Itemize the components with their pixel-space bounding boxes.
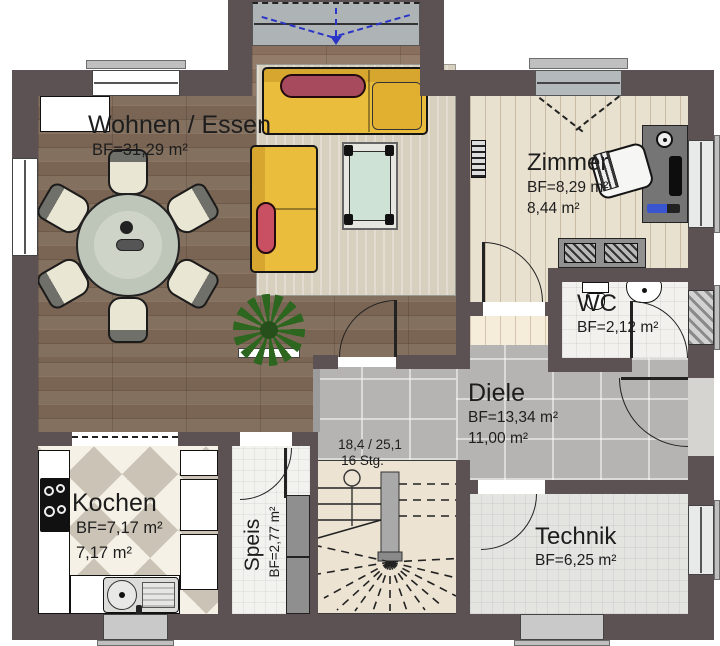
wall — [604, 614, 714, 640]
room-area-kochen: BF=7,17 m² — [76, 520, 163, 537]
door-leaf — [394, 300, 397, 357]
wall — [12, 70, 92, 96]
wall — [168, 614, 520, 640]
wall — [622, 70, 714, 96]
wall-int — [456, 316, 470, 355]
wall — [444, 70, 535, 96]
window-sill — [514, 640, 610, 646]
room-area2-kochen: 7,17 m² — [76, 545, 132, 562]
burner — [44, 486, 54, 496]
room-area-wc: BF=2,12 m² — [577, 320, 658, 336]
window-glass-line — [537, 82, 620, 84]
room-label-kochen: Kochen — [72, 490, 157, 516]
wall-int — [218, 432, 232, 614]
room-area-technik: BF=6,25 m² — [535, 553, 616, 569]
desk-printer — [669, 156, 682, 196]
kitchen-passage-dashed — [72, 436, 178, 438]
sink-drainer — [142, 582, 175, 608]
window-wc — [688, 290, 714, 345]
room-area-diele: BF=13,34 m² — [468, 410, 558, 426]
kitchen-cabinet — [180, 479, 218, 531]
sofa-top-pillow — [280, 74, 366, 98]
wc-sink-drain — [642, 288, 647, 293]
dresser-item — [564, 243, 596, 263]
wall-int — [470, 480, 478, 494]
wall-bay — [228, 0, 252, 96]
window-sill — [529, 58, 628, 69]
window-sill — [86, 60, 186, 69]
floor-wohnen-lower — [38, 357, 320, 432]
wall-bay — [420, 0, 444, 96]
room-area-speis: BF=2,77 m² — [268, 507, 282, 578]
wall-int — [548, 268, 562, 372]
wall-int — [548, 268, 688, 282]
table-centerpiece — [116, 239, 144, 251]
room-area-wohnen: BF=31,29 m² — [92, 142, 188, 159]
wall — [12, 614, 103, 640]
stairs-dimension: 18,4 / 25,1 — [315, 438, 425, 452]
room-area2-zimmer: 8,44 m² — [527, 201, 580, 217]
wall — [688, 575, 714, 614]
coffee-table-leg — [385, 214, 394, 225]
sink-drain-dot — [119, 592, 125, 598]
room-label-zimmer: Zimmer — [527, 150, 608, 175]
floor-plan: Wohnen / Essen BF=31,29 m² Zimmer BF=8,2… — [0, 0, 720, 646]
room-label-technik: Technik — [535, 524, 616, 549]
desk-lamp-dot — [663, 138, 667, 142]
wall-int — [456, 460, 470, 614]
speis-cabinet-divider — [287, 556, 309, 558]
wall — [180, 70, 228, 96]
door-open-arrowhead — [330, 36, 342, 45]
room-area2-diele: 11,00 m² — [468, 431, 528, 447]
window-glass-line — [24, 160, 26, 254]
kitchen-cabinet — [180, 534, 218, 590]
dresser-item — [604, 243, 638, 263]
door-leaf — [621, 377, 688, 380]
window-sill — [714, 135, 720, 233]
room-label-wc: WC — [577, 291, 617, 316]
floor-zimmer-threshold — [470, 316, 548, 348]
wall — [688, 96, 714, 140]
table-decor — [120, 221, 133, 234]
wall-int — [178, 432, 218, 446]
kitchen-cabinet — [180, 450, 218, 476]
wall-int — [562, 358, 632, 372]
wall-int — [313, 355, 338, 369]
room-label-speis: Speis — [242, 519, 264, 572]
radiator — [471, 140, 486, 178]
window-glass-line — [700, 507, 702, 573]
wall — [688, 345, 714, 378]
sofa-top-cushion — [372, 82, 422, 130]
burner — [56, 484, 65, 493]
coffee-table-leg — [344, 145, 353, 156]
window-glass-line — [94, 82, 178, 84]
cooktop — [40, 478, 70, 532]
sofa-top-divider — [368, 70, 370, 132]
floor-step-edge — [313, 367, 320, 432]
coffee-table-leg — [344, 214, 353, 225]
sofa-left-pillow — [256, 202, 276, 254]
wall — [12, 256, 38, 640]
wall-int — [396, 355, 470, 369]
window — [520, 614, 604, 640]
wall — [688, 228, 714, 290]
window-sill — [714, 500, 720, 580]
door-leaf — [482, 242, 485, 302]
dining-chair — [108, 297, 148, 343]
kitchen-counter-left — [38, 450, 70, 614]
room-label-wohnen: Wohnen / Essen — [88, 112, 271, 138]
wall — [688, 456, 714, 505]
coffee-table-glass — [349, 151, 391, 221]
desk-keyboard — [647, 204, 680, 213]
plant — [233, 294, 305, 366]
wall-int — [232, 432, 240, 446]
window-sill — [714, 285, 720, 350]
stairs-step-count: 16 Stg. — [315, 454, 410, 468]
burner — [57, 505, 66, 514]
wall-int — [545, 480, 688, 494]
wall-int — [456, 96, 470, 316]
room-label-diele: Diele — [468, 380, 525, 406]
entrance-threshold — [688, 378, 714, 456]
coffee-table-leg — [385, 145, 394, 156]
staircase — [315, 460, 470, 614]
door-leaf — [284, 448, 287, 498]
wall-int — [38, 432, 72, 446]
window-glass-line — [700, 142, 702, 226]
door-open-arrow — [335, 8, 337, 36]
window — [103, 614, 168, 640]
speis-cabinet — [286, 495, 310, 614]
wall-int — [470, 302, 483, 316]
window-sill — [97, 640, 174, 646]
room-area-zimmer: BF=8,29 m² — [527, 180, 608, 196]
burner — [44, 506, 55, 517]
